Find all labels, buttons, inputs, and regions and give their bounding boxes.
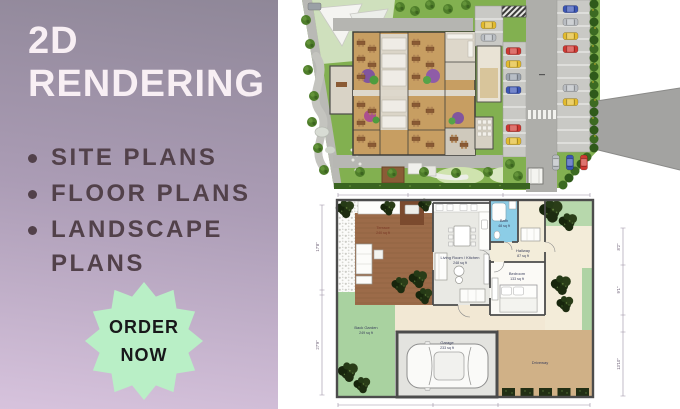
title-line-1: 2D [28, 20, 265, 63]
living-kitchen-area [433, 203, 490, 305]
dim-left-lower: 27'9" [315, 340, 320, 350]
access-road [590, 88, 680, 170]
room-area-garage: 233 sq ft [440, 346, 454, 350]
school-building [330, 32, 493, 155]
title-line-2: RENDERING [28, 63, 265, 106]
service-label: LANDSCAPE PLANS [51, 213, 251, 281]
dim-right-middle: 9'1" [616, 286, 621, 293]
bullet-dot [28, 154, 37, 163]
room-label-living: Living Room / Kitchen [441, 255, 480, 260]
promo-panel: 2D RENDERING SITE PLANS FLOOR PLANS LAND… [0, 0, 278, 409]
bullet-dot [28, 226, 37, 235]
list-item: SITE PLANS [28, 141, 251, 175]
room-label-hallway: Hallway [516, 248, 530, 253]
gig-thumbnail: 2D RENDERING SITE PLANS FLOOR PLANS LAND… [0, 0, 680, 409]
list-item: FLOOR PLANS [28, 177, 251, 211]
service-label: SITE PLANS [51, 141, 251, 175]
dim-right-lower: 13'10" [616, 358, 621, 370]
dim-right-upper: 8'2" [616, 243, 621, 250]
room-label-driveway: Driveway [532, 360, 548, 365]
room-label-garden: Back Garden [354, 325, 377, 330]
order-now-badge[interactable]: ORDER NOW [84, 281, 204, 401]
dim-left-upper: 17'8" [315, 242, 320, 252]
room-area-bath: 48 sq ft [498, 224, 510, 228]
service-label: FLOOR PLANS [51, 177, 251, 211]
room-label-bedroom: Bedroom [509, 271, 526, 276]
list-item: LANDSCAPE PLANS [28, 213, 251, 281]
room-area-hallway: 87 sq ft [517, 254, 529, 258]
badge-line-2: NOW [121, 345, 168, 366]
site-plan-image [300, 0, 680, 192]
room-area-living: 248 sq ft [453, 261, 467, 265]
bedroom-area [490, 262, 545, 315]
bullet-dot [28, 190, 37, 199]
room-area-terrace: 240 sq ft [376, 231, 390, 235]
room-area-garden: 249 sq ft [359, 331, 373, 335]
room-label-bath: Bath [500, 218, 508, 223]
room-label-terrace: Terrace [376, 225, 390, 230]
service-list: SITE PLANS FLOOR PLANS LANDSCAPE PLANS [28, 141, 251, 283]
badge-text: ORDER NOW [84, 281, 204, 401]
floor-plan-image: Terrace 240 sq ft Living Room / Kitchen … [308, 192, 680, 409]
badge-line-1: ORDER [109, 317, 179, 338]
room-label-garage: Garage [440, 340, 454, 345]
room-area-bedroom: 133 sq ft [510, 277, 524, 281]
page-title: 2D RENDERING [28, 20, 265, 106]
